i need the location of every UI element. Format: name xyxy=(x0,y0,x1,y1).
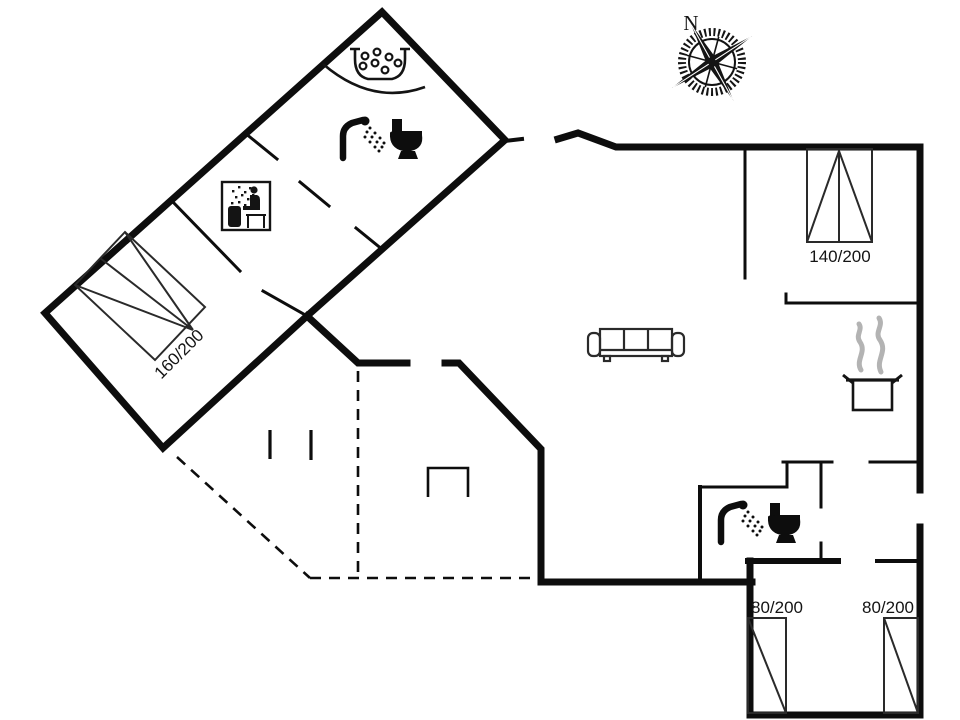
cooking-pot-icon xyxy=(843,318,902,410)
bed-80-right-label: 80/200 xyxy=(862,598,914,617)
north-label: N xyxy=(683,11,698,35)
north-wall xyxy=(558,133,920,490)
shower-toilet-icon-main-bathroom xyxy=(343,117,422,160)
sofa-icon xyxy=(588,329,684,361)
steam xyxy=(878,318,883,372)
terrace-post-marks xyxy=(270,430,311,460)
shower-toilet-icon-second-bathroom xyxy=(721,501,800,544)
ne-bedroom-south-wall xyxy=(786,294,920,303)
compass-rose-icon xyxy=(669,21,755,103)
terrace-step xyxy=(428,468,468,497)
bed-80-right xyxy=(884,618,918,713)
wing-outline-wall xyxy=(45,12,505,448)
steam xyxy=(858,324,862,370)
kitchen-south-wall xyxy=(700,462,918,487)
floor-plan: 160/200 140/200 80/200 80/200 xyxy=(0,0,960,720)
terrace-outline xyxy=(177,371,539,578)
bed-140-label: 140/200 xyxy=(809,247,870,266)
terrace-dashed-edge xyxy=(177,371,539,578)
floor-plan-drawing: 160/200 140/200 80/200 80/200 xyxy=(0,0,960,720)
bed-140 xyxy=(807,149,872,242)
living-room-west-wall xyxy=(307,316,407,363)
entrance-jamb xyxy=(505,139,522,141)
bed-80-left xyxy=(748,618,786,713)
sauna-icon xyxy=(222,182,270,230)
bed-80-left-label: 80/200 xyxy=(751,598,803,617)
living-room-southwest-wall xyxy=(445,363,752,582)
